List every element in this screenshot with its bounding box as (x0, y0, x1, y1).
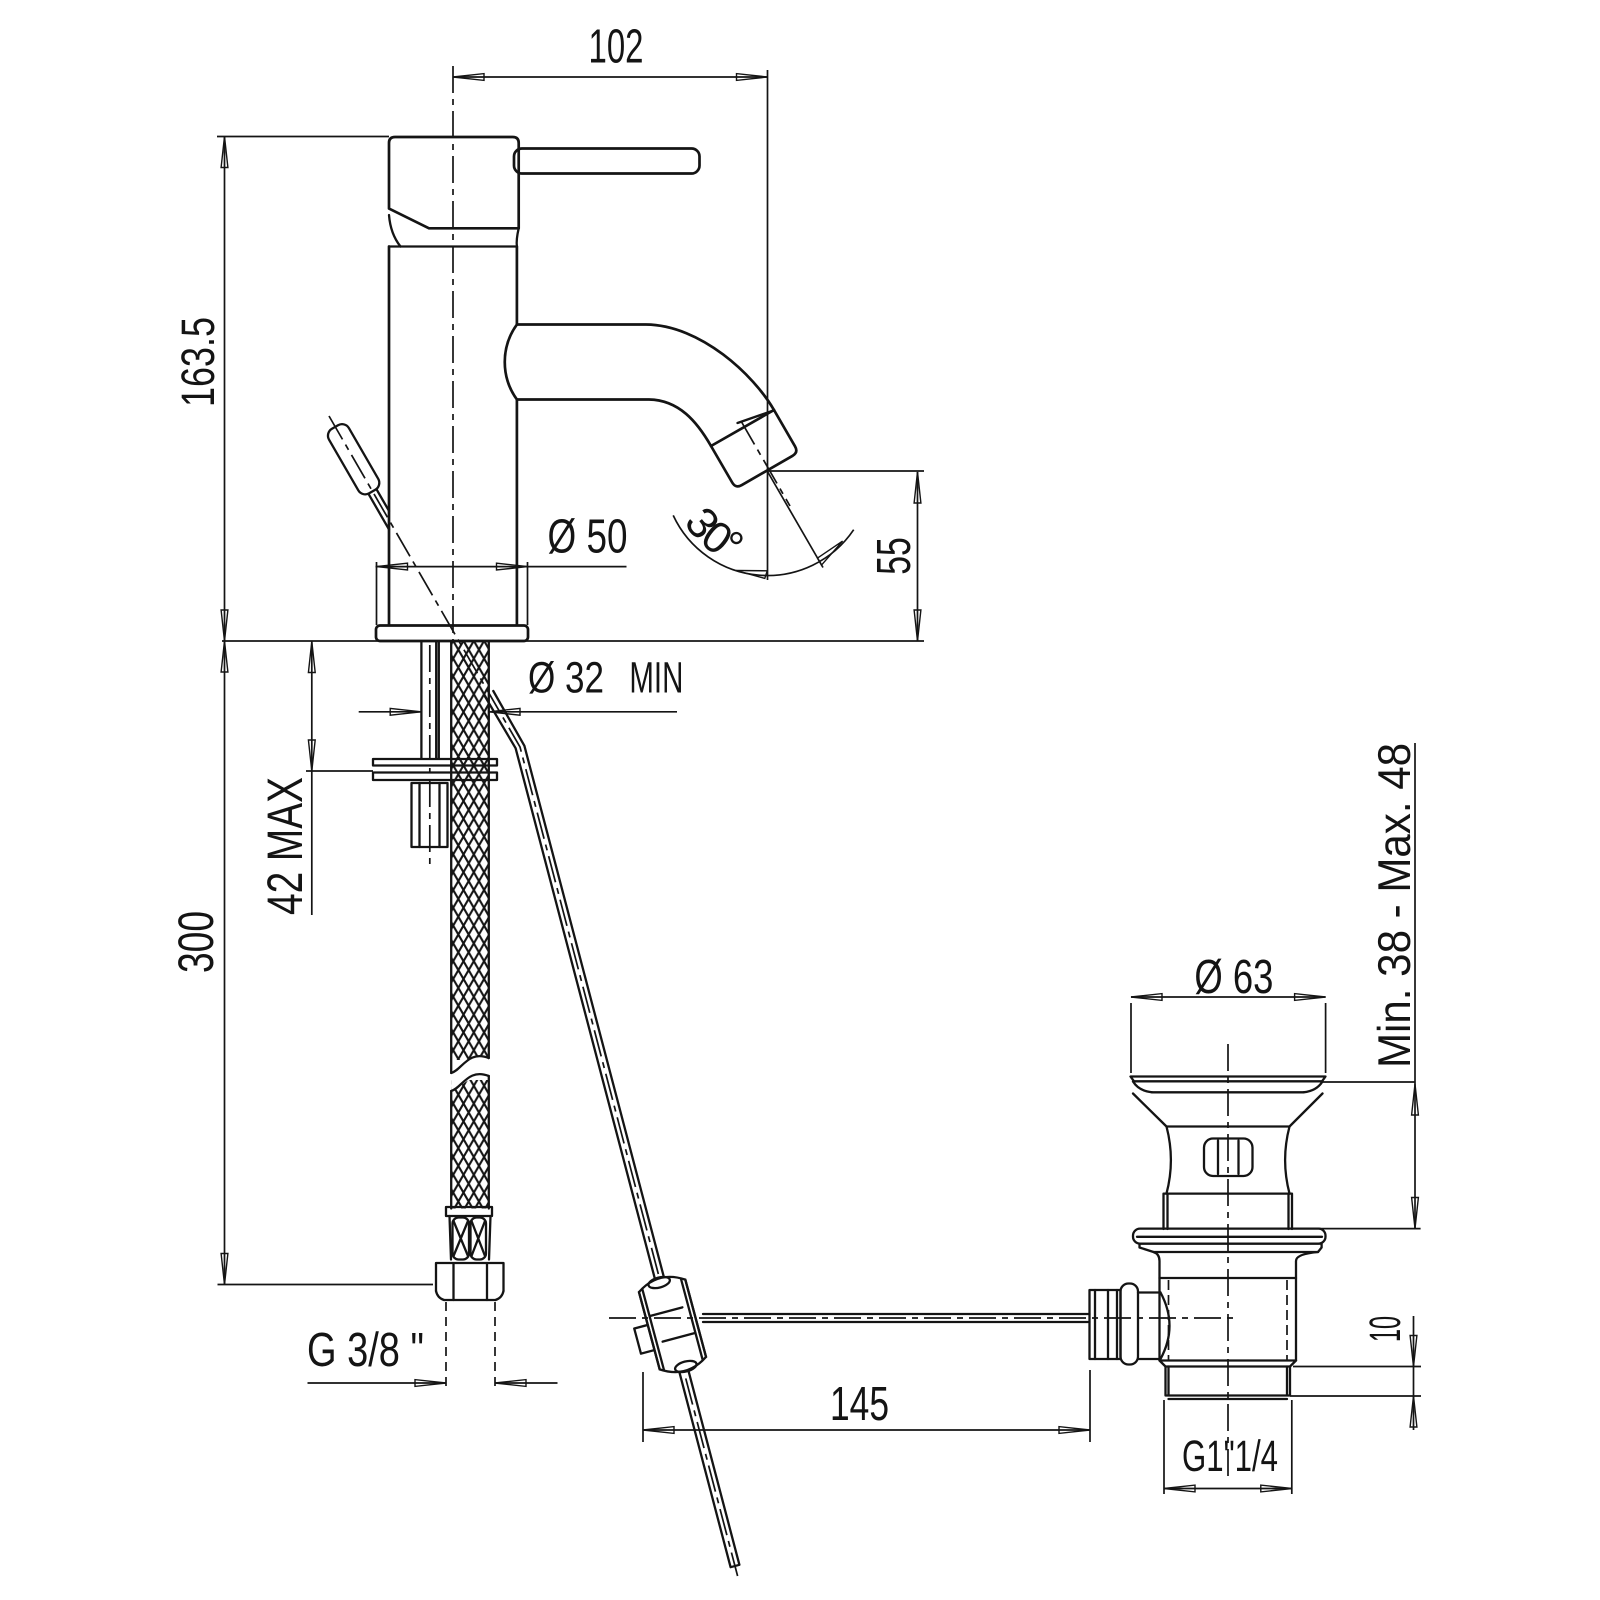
svg-text:300: 300 (168, 911, 224, 973)
svg-text:Min. 38 - Max. 48: Min. 38 - Max. 48 (1368, 743, 1420, 1068)
svg-text:55: 55 (868, 537, 921, 575)
svg-text:42 MAX: 42 MAX (257, 777, 313, 915)
svg-text:163.5: 163.5 (171, 317, 224, 407)
svg-text:G1"1/4: G1"1/4 (1182, 1432, 1278, 1481)
svg-text:145: 145 (830, 1378, 889, 1431)
svg-text:Ø 32: Ø 32 (528, 654, 604, 703)
svg-text:10: 10 (1361, 1316, 1410, 1342)
svg-text:Ø 63: Ø 63 (1194, 951, 1273, 1004)
svg-text:Ø 50: Ø 50 (548, 511, 628, 564)
svg-text:102: 102 (589, 21, 644, 74)
svg-text:G 3/8 ": G 3/8 " (307, 1324, 424, 1377)
svg-text:MIN: MIN (629, 654, 683, 703)
